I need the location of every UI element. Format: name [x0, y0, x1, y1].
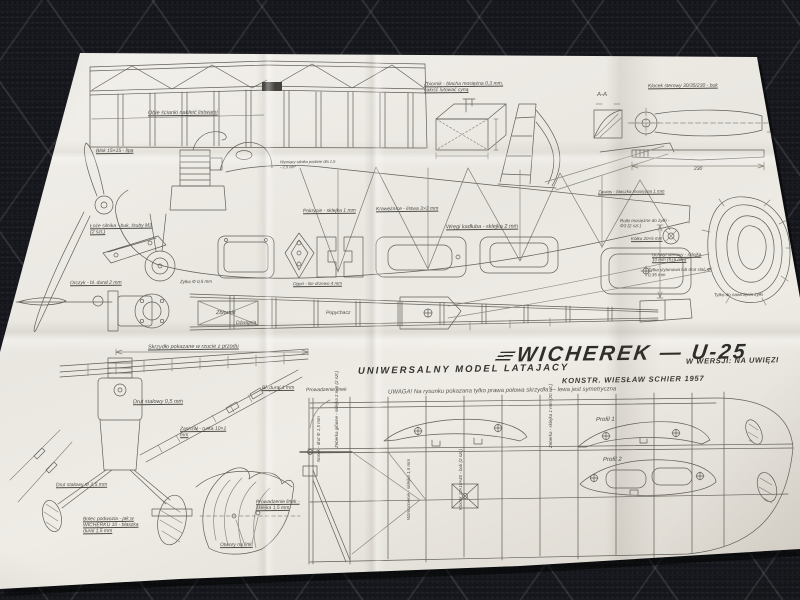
control-line-label: Żyłka stylonowa lub drut stal. Φ 0,35 mm	[648, 267, 712, 278]
profile1-label: Profil 1	[596, 417, 615, 424]
dural-sheet-label: Bl. dural 1 mm	[262, 386, 294, 392]
steel-wire-05-label: Drut stalowy 0,5 mm	[133, 399, 183, 406]
tank-plan-label: Zbiornik	[216, 310, 236, 317]
symmetry-note: UWAGA! Na rysunku pokazana tylko prawa p…	[388, 386, 616, 395]
bellcrank-label: Orczyk - bl. dural 2 mm	[70, 281, 122, 287]
speed-lines-icon	[495, 351, 516, 360]
nose-wire-label: Nosek - drut Φ 1,5 mm	[316, 416, 321, 462]
dim-230-label: 230	[694, 167, 702, 173]
handle-block-label: Klocek sterowy 30/35/230 - buk	[648, 84, 718, 91]
hinge-label: Zawias - blaszka mosiężna 1 mm	[598, 189, 665, 195]
section-aa-label: A-A	[597, 92, 607, 99]
tail-solid-label: Ogon - lite drzewo 4 mm	[293, 281, 342, 287]
steel-wire-15-label: Drut stalowy Φ 1,5 mm	[56, 483, 107, 489]
tank-note-label: Zbiornik - blacha mosiężna 0,3 mm, całoś…	[424, 82, 506, 95]
engine-note-label: Wymiary silnika podane dla 1,5 - 2,5 cm³	[280, 160, 336, 170]
line-holes-label: Otwory na linki	[220, 543, 253, 549]
winding-note-label: Tylko do nawinięcia żyłki	[714, 292, 768, 298]
plan-sheet: UNIWERSALNY MODEL LATAJACY WICHEREK — U-…	[0, 0, 800, 600]
formers-label: Wręgi kadłuba - sklejka 2 mm	[446, 224, 518, 231]
constructor-credit: KONSTR. WIESŁAW SCHIER 1957	[562, 374, 705, 385]
gear-pin-label: Bolec podwozia - jak w WICHERKU 10 - bla…	[83, 517, 147, 535]
pushrod-label: Popychacz	[326, 311, 351, 317]
profile2-label: Profil 2	[603, 457, 622, 464]
ribs-right-label: Żeberka - sklejka 1 mm (20 szt.)	[548, 384, 553, 448]
block-beech-label: Klocek 10×10×45 - buk (2 szt.)	[458, 449, 463, 510]
reinforcement-label: Wzmocnienie - sklejka 1,5 mm	[406, 459, 411, 520]
strut-label: Zastrzał - rurka 10×1 mm	[180, 427, 232, 439]
annotations-layer: UNIWERSALNY MODEL LATAJACY WICHEREK — U-…	[0, 0, 800, 600]
lever-label: Dźwignia	[236, 321, 256, 327]
main-ribs-label: Żeberka główne - sklejka 2 mm (2 szt.)	[334, 371, 339, 448]
covering-label: Pokrycie - sklejka 1 mm	[303, 209, 356, 215]
photo-of-model-plan: UNIWERSALNY MODEL LATAJACY WICHEREK — U-…	[0, 0, 800, 600]
tailwheel-label: Kółko 20×5 mm	[631, 236, 662, 242]
version-label: W WERSJI: NA UWIĘZI	[686, 355, 779, 366]
nylon-line-label: Żyłka Φ 0,5 mm	[180, 279, 212, 285]
pulleys-label: Rolki mosiężne do żyłki - Φ3 (2 szt.)	[620, 218, 674, 229]
line-guide-wing-label: Prowadzenie linek	[306, 388, 348, 394]
truss-note-label: Obie ścianki nakleić listwami	[148, 110, 218, 117]
block-note-label: Blok 15×15 - lipa	[96, 149, 133, 155]
engine-mount-label: Łoże silnika - buk, śruby M3 (2 szt.)	[90, 224, 152, 236]
handle-label: Uchwyt sterowy - sklejka 10 mm (5+5 mm)	[652, 252, 706, 263]
line-guide-fin-label: Prowadzenie linek - sklejka 1,5 mm	[256, 500, 304, 512]
wing-front-note-label: Skrzydło pokazane w rzucie z przodu	[148, 344, 239, 351]
stringers-label: Krawężnice - listwa 3×3 mm	[376, 207, 438, 214]
